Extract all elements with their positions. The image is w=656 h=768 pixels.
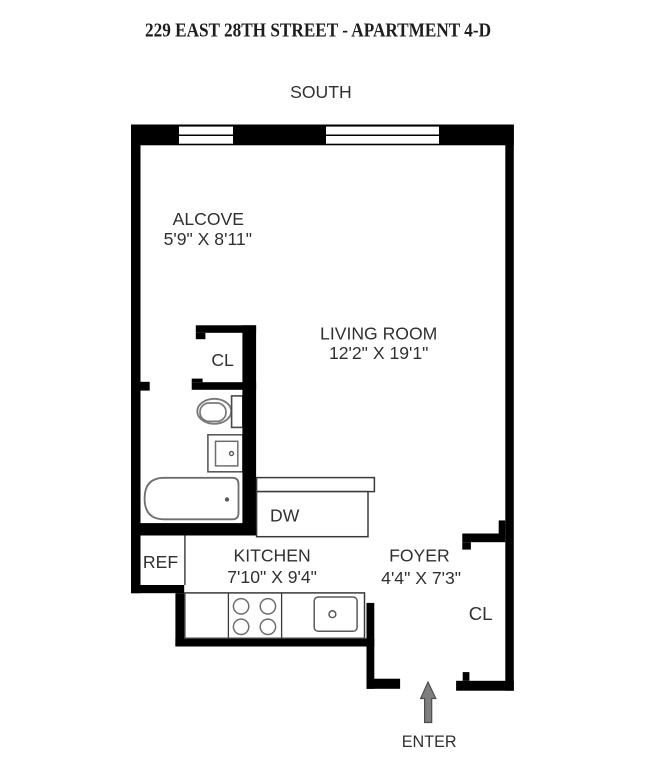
svg-text:CL: CL <box>469 603 493 624</box>
svg-text:DW: DW <box>270 506 300 526</box>
svg-text:4'4" X 7'3": 4'4" X 7'3" <box>381 568 461 588</box>
svg-text:REF: REF <box>143 552 178 572</box>
svg-text:CL: CL <box>211 350 234 370</box>
svg-text:SOUTH: SOUTH <box>290 82 352 102</box>
svg-text:229 EAST 28TH STREET - APARTME: 229 EAST 28TH STREET - APARTMENT 4-D <box>145 21 491 42</box>
svg-text:KITCHEN: KITCHEN <box>233 546 310 566</box>
svg-text:FOYER: FOYER <box>389 546 450 566</box>
svg-text:12'2" X 19'1": 12'2" X 19'1" <box>329 343 428 363</box>
svg-text:LIVING ROOM: LIVING ROOM <box>320 323 437 343</box>
svg-text:ALCOVE: ALCOVE <box>173 209 244 229</box>
svg-text:7'10" X 9'4": 7'10" X 9'4" <box>227 567 317 587</box>
svg-text:ENTER: ENTER <box>402 733 457 751</box>
svg-text:5'9" X 8'11": 5'9" X 8'11" <box>164 229 252 249</box>
